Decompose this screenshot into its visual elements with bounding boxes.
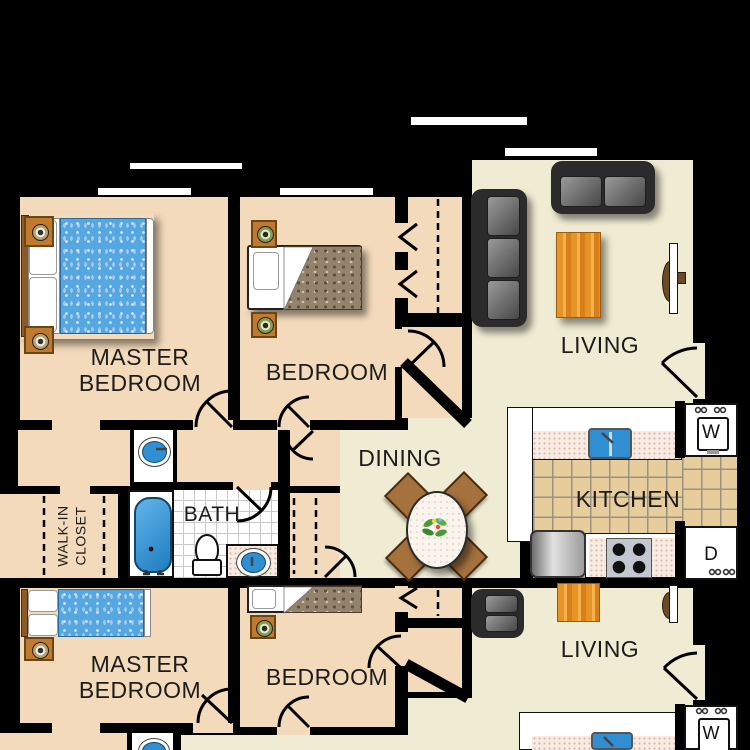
tv-console-2: [658, 585, 688, 625]
opening-bedroom2-door: [277, 727, 310, 735]
opening-bath-door: [233, 482, 271, 490]
hall-bath: [177, 430, 278, 482]
master-bed-2: [21, 589, 152, 637]
label-underline-living: [411, 117, 527, 125]
floor-plan: W D: [0, 0, 750, 750]
window-bedroom: [280, 188, 373, 195]
nightstand: [24, 216, 54, 247]
dining-table: [406, 491, 468, 569]
bedroom-bed-2: [247, 585, 362, 613]
sink-divider: [609, 432, 612, 456]
label-kitchen: KITCHEN: [528, 486, 728, 512]
window-living: [505, 148, 597, 156]
below-foyer-2: [408, 698, 472, 750]
label-bedroom-2: BEDROOM: [227, 664, 427, 690]
sofa: [471, 189, 527, 327]
label-master-bedroom: MASTER BEDROOM: [40, 344, 240, 396]
opening-master-hall: [52, 420, 100, 430]
label-bedroom: BEDROOM: [227, 359, 427, 385]
washer2-label: W: [686, 723, 736, 744]
bath-sink: [241, 552, 266, 573]
opening-bifold-1: [395, 223, 408, 252]
closet-bedroom: [408, 197, 462, 313]
nightstand: [250, 615, 276, 639]
label-underline-bedrooms: [130, 163, 242, 169]
washer-label: W: [686, 422, 736, 444]
label-bath: BATH: [152, 502, 272, 528]
coffee-table: [556, 232, 601, 318]
sofa-2: [471, 589, 524, 638]
opening-master2-hall: [52, 723, 100, 733]
opening-bedroom-door: [277, 420, 310, 430]
label-living-2: LIVING: [500, 636, 700, 662]
tv-console: [658, 243, 688, 316]
kitchen-bar: [507, 407, 533, 542]
dryer-label: D: [686, 544, 736, 566]
kitchen-sink-2: [591, 732, 633, 750]
hall-master-2: [0, 733, 127, 750]
loveseat: [551, 161, 655, 214]
dining-foyer-edge: [408, 418, 462, 430]
opening-master2-door: [193, 723, 233, 733]
hall-master: [18, 430, 130, 486]
nightstand: [251, 220, 277, 248]
washer-2: W: [684, 705, 738, 750]
label-master-bedroom-2: MASTER BEDROOM: [40, 651, 240, 703]
label-living: LIVING: [500, 332, 700, 358]
window-master: [98, 188, 191, 195]
opening-bifold-2: [395, 270, 408, 298]
label-dining: DINING: [300, 445, 500, 471]
wall-closet-column: [290, 486, 340, 493]
opening-master-door: [193, 420, 233, 430]
nightstand: [251, 312, 277, 338]
bedroom-bed: [247, 245, 362, 310]
closet-bedroom-2: [408, 588, 462, 618]
refrigerator: [530, 530, 586, 578]
toilet-tank: [192, 559, 222, 576]
opening-bifold-3: [395, 586, 408, 612]
stove: [606, 538, 652, 578]
washer: W: [684, 403, 738, 457]
label-walk-in-closet: WALK-IN CLOSET: [28, 492, 116, 580]
kitchen-sink: [588, 428, 632, 459]
master-sink: [142, 441, 167, 463]
opening-foyer2-door: [395, 632, 408, 666]
dryer: D: [684, 526, 738, 580]
coffee-table-2: [557, 583, 600, 622]
